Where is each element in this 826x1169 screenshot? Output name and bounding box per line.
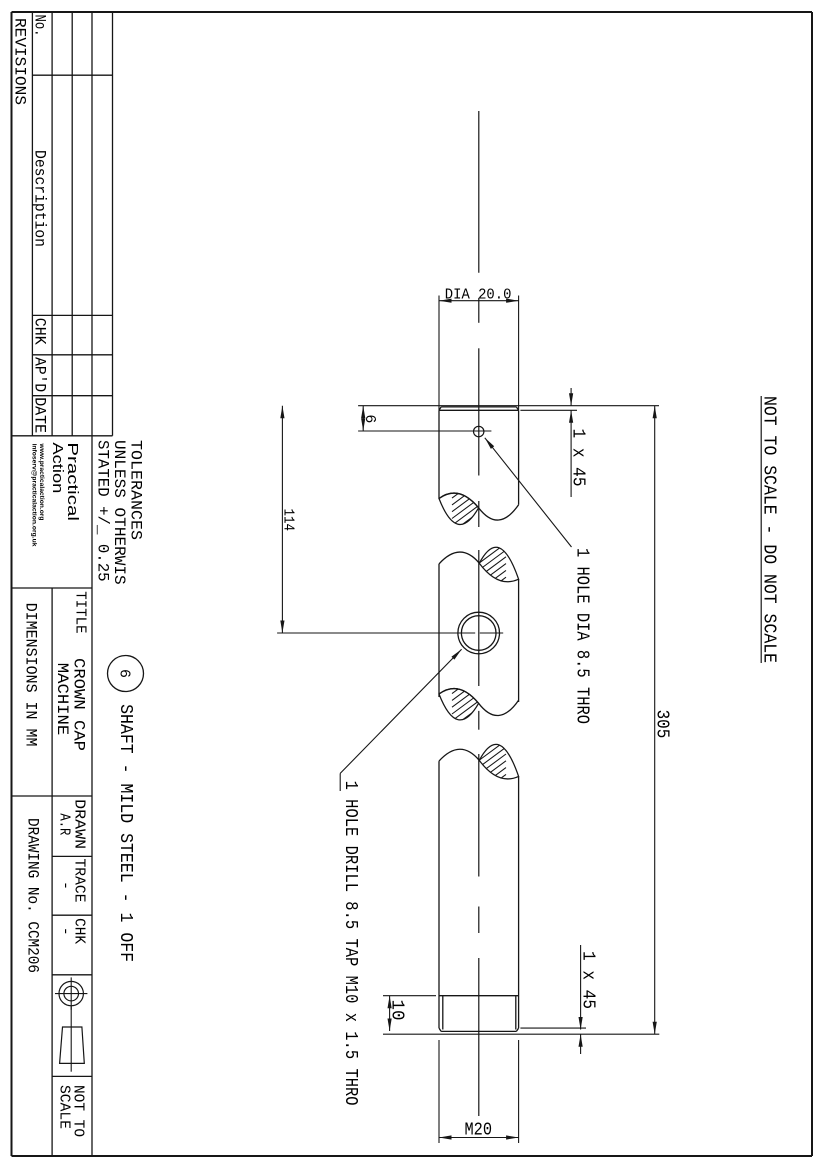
svg-text:infoserv@practicalaction.org.u: infoserv@practicalaction.org.uk [31, 444, 38, 548]
svg-text:DRAWN: DRAWN [71, 799, 88, 849]
svg-text:Practical: Practical [64, 442, 81, 521]
svg-text:CHK: CHK [31, 318, 49, 346]
svg-text:CROWN CAP: CROWN CAP [70, 658, 88, 751]
svg-text:SCALE: SCALE [56, 1085, 73, 1129]
svg-text:AP'D: AP'D [31, 357, 49, 392]
svg-text:TOLERANCES: TOLERANCES [127, 440, 145, 540]
svg-text:TITLE: TITLE [72, 591, 89, 633]
svg-text:1 x 45: 1 x 45 [578, 951, 598, 1009]
svg-text:1 HOLE DRILL 8.5 TAP M10 x 1.5: 1 HOLE DRILL 8.5 TAP M10 x 1.5 THRO [340, 781, 360, 1106]
svg-text:DIA 20.0: DIA 20.0 [445, 287, 512, 304]
svg-text:114: 114 [280, 509, 297, 532]
svg-text:DIMENSIONS IN MM: DIMENSIONS IN MM [22, 603, 40, 747]
svg-text:A.R: A.R [56, 813, 73, 835]
svg-text:-: - [57, 881, 74, 890]
svg-text:DATE: DATE [31, 397, 49, 433]
svg-text:10: 10 [387, 1000, 407, 1021]
svg-text:1 HOLE DIA 8.5 THRO: 1 HOLE DIA 8.5 THRO [572, 548, 592, 724]
svg-text:DRAWING No. CCM206: DRAWING No. CCM206 [24, 818, 42, 973]
svg-text:REVISIONS: REVISIONS [11, 18, 29, 105]
svg-text:-: - [57, 927, 74, 936]
svg-text:No.: No. [31, 15, 49, 37]
svg-text:MACHINE: MACHINE [53, 663, 71, 735]
svg-text:M20: M20 [465, 1121, 493, 1141]
svg-text:Description: Description [31, 150, 49, 247]
svg-text:6: 6 [361, 414, 378, 423]
svg-text:6: 6 [116, 669, 133, 678]
svg-text:www.practicalaction.org: www.practicalaction.org [38, 442, 45, 520]
svg-text:Action: Action [49, 442, 66, 493]
svg-text:1 x 45: 1 x 45 [568, 429, 588, 487]
svg-text:305: 305 [652, 710, 672, 739]
svg-text:STATED +/_ 0.25: STATED +/_ 0.25 [94, 440, 112, 582]
svg-text:UNLESS OTHERWIS: UNLESS OTHERWIS [110, 440, 128, 585]
svg-text:SHAFT - MILD STEEL - 1 OFF: SHAFT - MILD STEEL - 1 OFF [115, 704, 135, 962]
